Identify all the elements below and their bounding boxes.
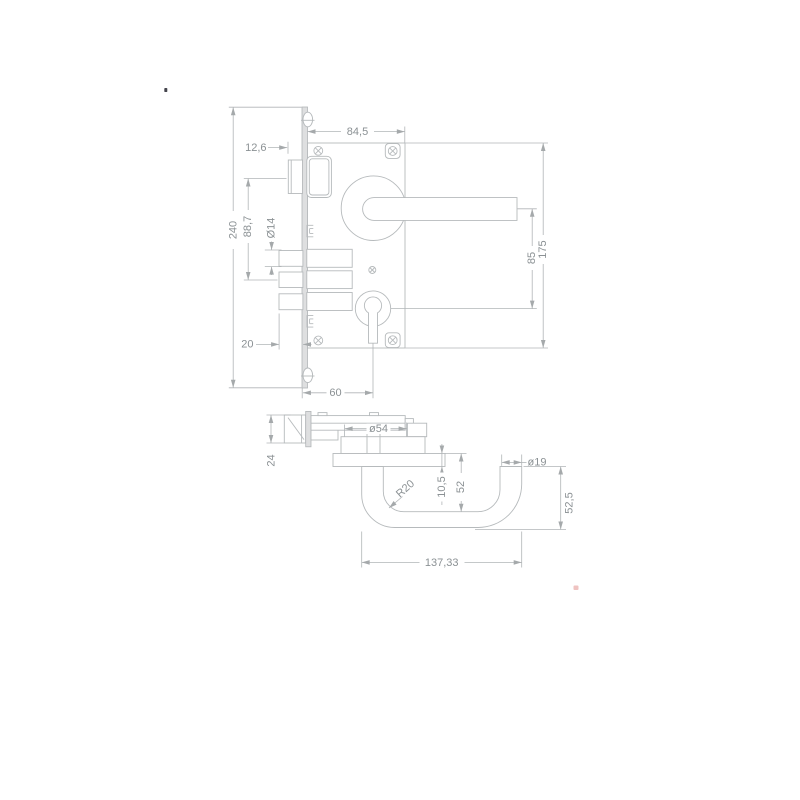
spindle-shaft bbox=[311, 413, 413, 431]
lever-handle bbox=[363, 198, 517, 221]
dim-end-height-label: 52,5 bbox=[563, 492, 575, 513]
dim-deadbolt-diameter: Ø14 bbox=[265, 218, 282, 275]
dim-backset-label: 60 bbox=[329, 387, 341, 399]
pink-speck-artifact bbox=[574, 586, 579, 591]
dim-case-height: 175 bbox=[406, 143, 550, 348]
dim-lever-diameter-label: ø19 bbox=[528, 457, 547, 469]
handle-side-view: R20 24 ø54 ø19 bbox=[265, 411, 575, 568]
faceplate bbox=[302, 107, 308, 388]
dark-speck-artifact bbox=[164, 88, 167, 92]
lock-handle-technical-drawing: 84,5 12,6 88,7 Ø14 bbox=[0, 0, 800, 800]
dim-case-width: 84,5 bbox=[308, 126, 405, 143]
dim-rose-diameter-label: ø54 bbox=[369, 423, 388, 435]
handle-neck-step bbox=[407, 423, 426, 437]
dim-deadbolt-throw: 20 bbox=[241, 314, 311, 351]
dim-rose-thickness-label: 10,5 bbox=[436, 476, 448, 497]
dim-faceplate-height-label: 240 bbox=[227, 221, 239, 239]
dim-corner-radius-label: R20 bbox=[394, 478, 417, 500]
dim-latch-protrusion: 12,6 bbox=[245, 142, 288, 154]
latch-bolt bbox=[288, 156, 331, 197]
dim-handle-length-label: 137,33 bbox=[425, 557, 459, 569]
dim-deadbolt-diameter-label: Ø14 bbox=[265, 218, 277, 239]
faceplate-side bbox=[306, 411, 311, 446]
dim-handle-to-cylinder: 85 bbox=[391, 209, 538, 309]
deadbolt-pins bbox=[279, 249, 352, 310]
mortise-lock-view: 84,5 12,6 88,7 Ø14 bbox=[227, 107, 549, 399]
dim-latch-protrusion-label: 12,6 bbox=[245, 142, 266, 154]
latch-case-side bbox=[311, 430, 338, 440]
dim-backset: 60 bbox=[302, 344, 373, 400]
dim-handle-length: 137,33 bbox=[362, 532, 522, 569]
dim-case-height-label: 175 bbox=[537, 240, 549, 258]
dim-corner-radius: R20 bbox=[389, 478, 417, 508]
latch-bolt-side bbox=[284, 415, 305, 443]
dim-grip-clearance-label: 52 bbox=[455, 481, 467, 493]
dim-grip-clearance: 52 bbox=[455, 454, 467, 512]
dim-latch-height-label: 24 bbox=[265, 454, 277, 466]
dim-latch-to-deadbolt-label: 88,7 bbox=[242, 216, 254, 237]
dim-case-width-label: 84,5 bbox=[347, 126, 368, 138]
technical-drawing-page: 84,5 12,6 88,7 Ø14 bbox=[0, 0, 800, 800]
dim-handle-to-cylinder-label: 85 bbox=[526, 252, 538, 264]
rose-plate bbox=[333, 454, 445, 467]
dim-deadbolt-throw-label: 20 bbox=[241, 339, 253, 351]
